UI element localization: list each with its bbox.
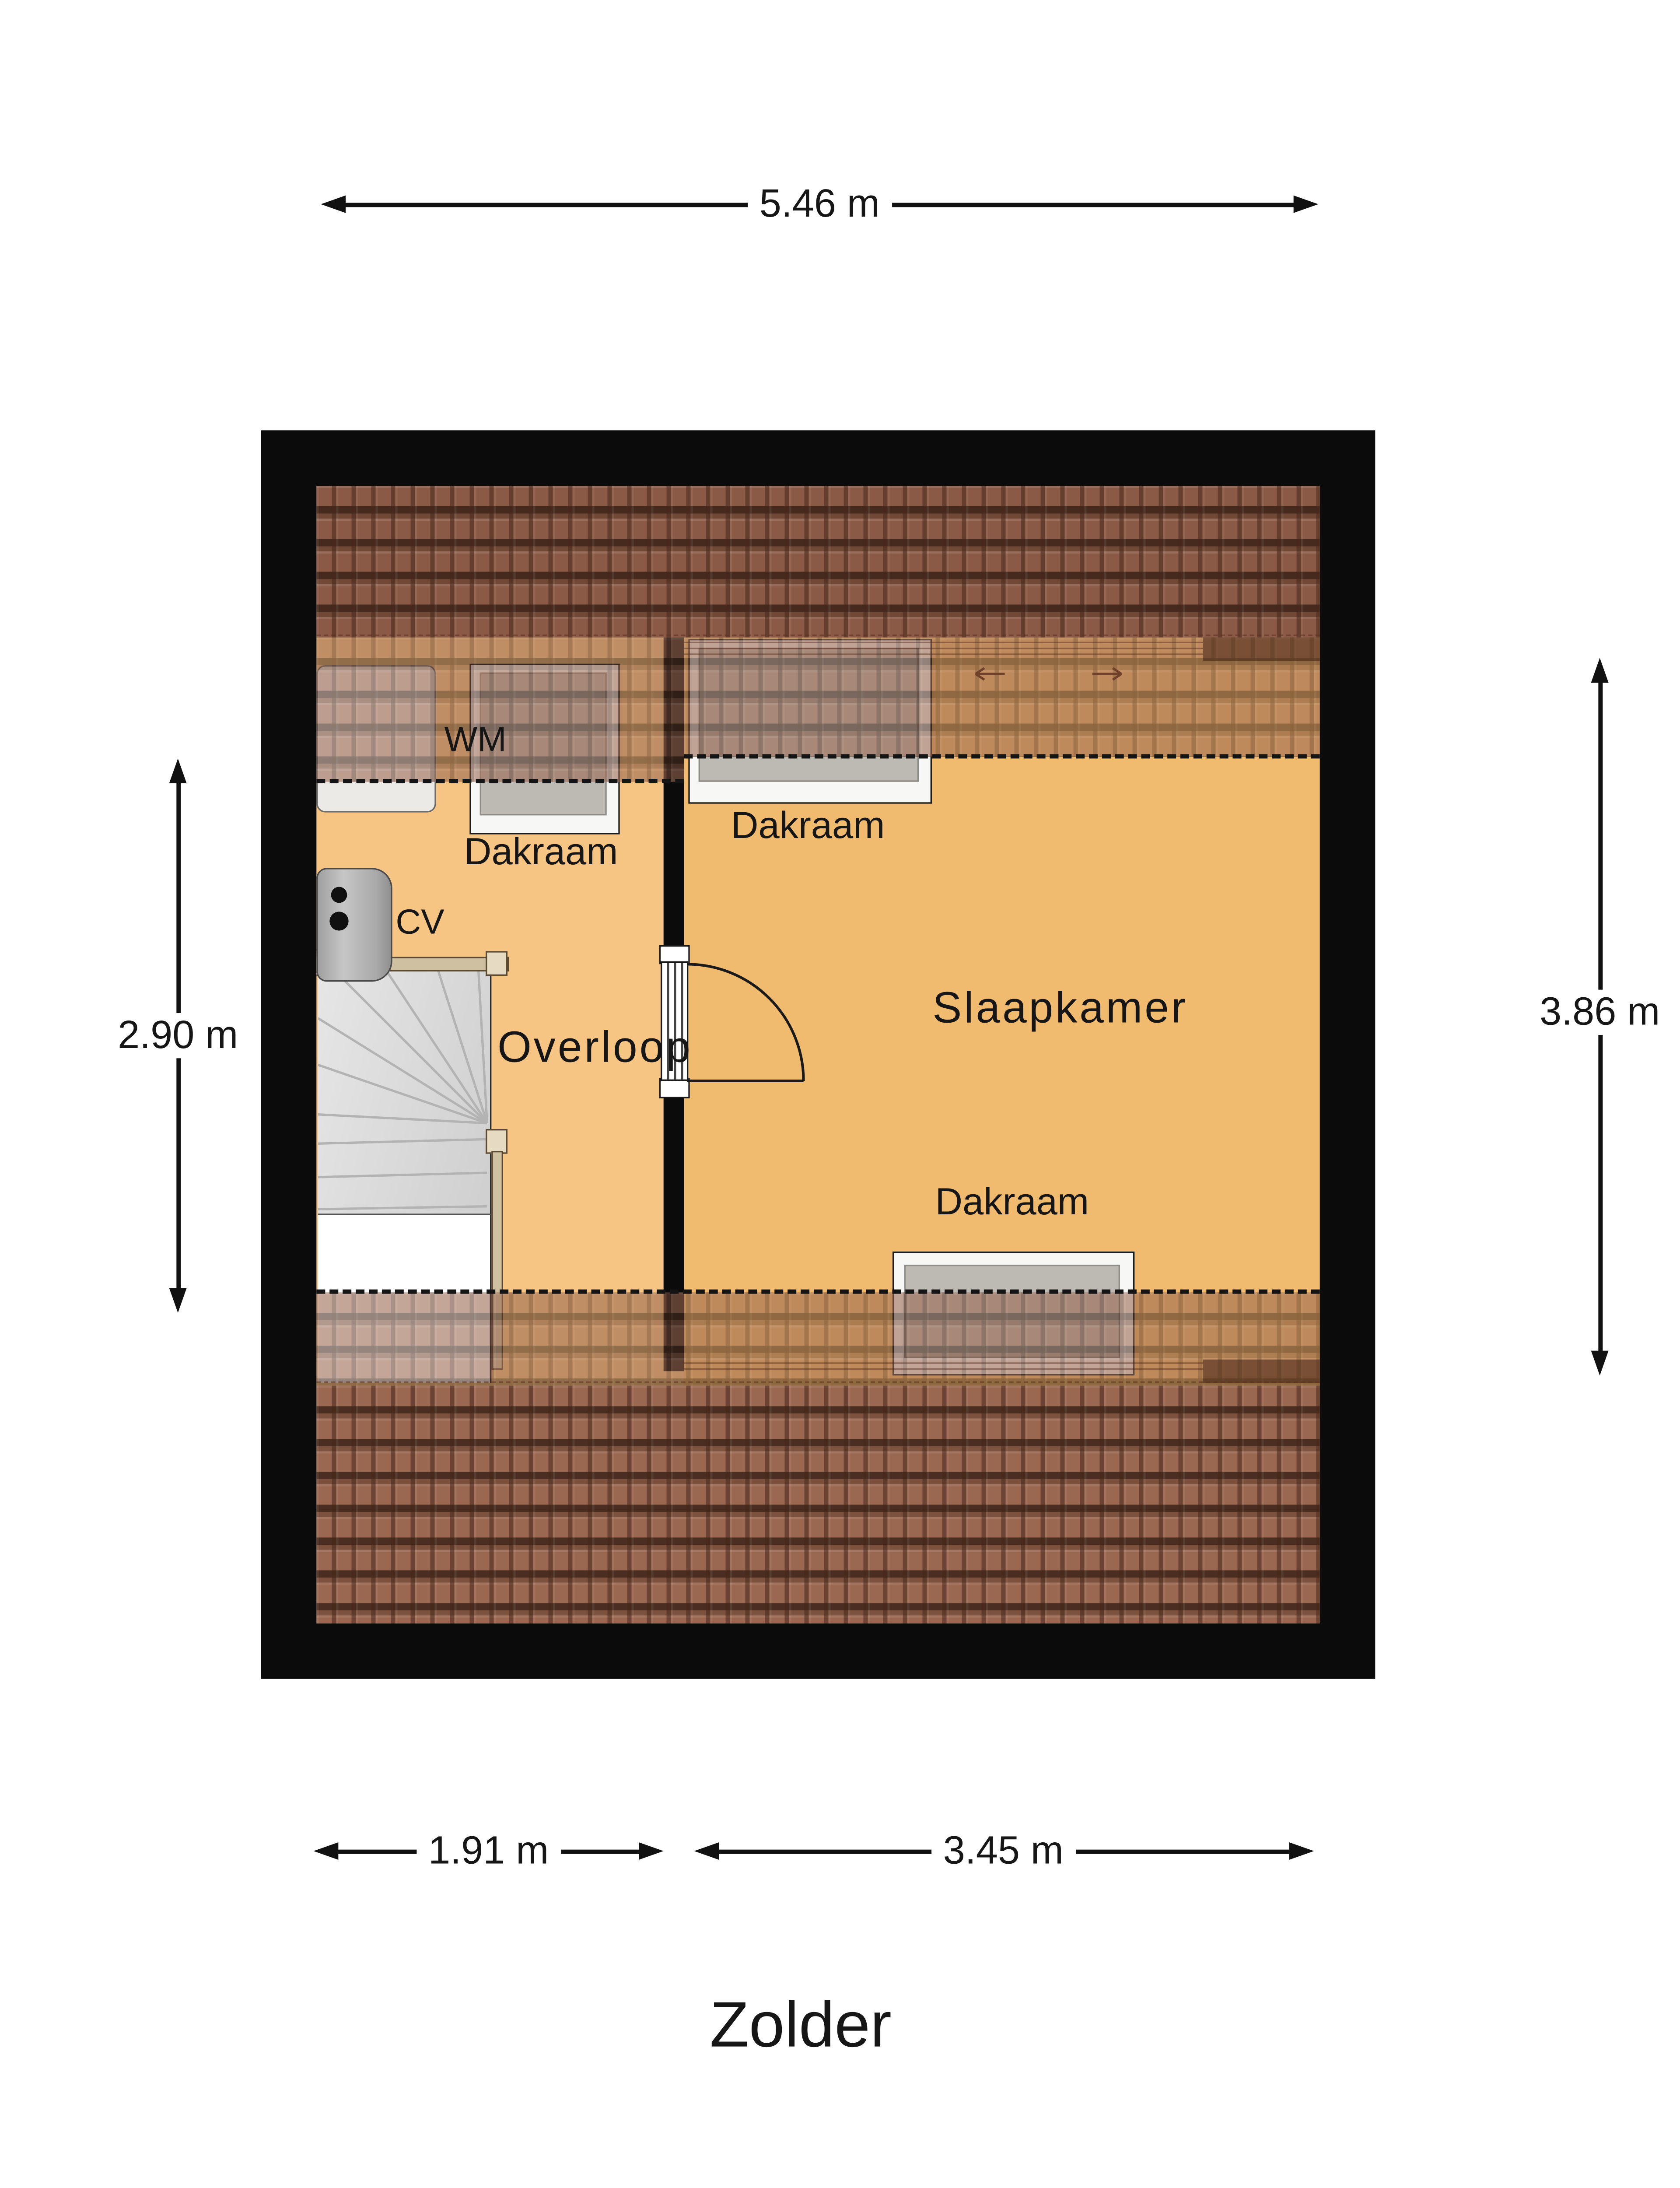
dimension-right: 3.86 m xyxy=(1563,658,1636,1375)
stair-treads xyxy=(318,968,490,1213)
dimension-label: 3.45 m xyxy=(931,1828,1075,1873)
dimension-arrow-icon xyxy=(1289,1842,1314,1860)
roof-track-line xyxy=(684,1368,1203,1370)
dimension-label: 2.90 m xyxy=(106,1013,249,1058)
dashed-roofline-bottom xyxy=(316,1290,1319,1294)
dimension-label: 1.91 m xyxy=(416,1828,560,1873)
roof-track-line xyxy=(684,653,1203,655)
floor-plan-page: 5.46 m 2.90 m 3.86 m xyxy=(0,0,1680,2188)
roof-track-line xyxy=(684,1362,1203,1364)
boiler-cv-unit xyxy=(316,868,392,982)
dashed-roofline-top-right xyxy=(684,754,1319,758)
dashed-roofline-top-left xyxy=(316,779,684,783)
dimension-bottom-right: 3.45 m xyxy=(694,1835,1314,1870)
dimension-arrow-icon xyxy=(1591,1351,1609,1376)
dimension-bottom-left: 1.91 m xyxy=(314,1835,664,1870)
stair-post xyxy=(486,1129,507,1154)
washing-machine-label: WM xyxy=(444,721,507,761)
roof-window-label-right: Dakraam xyxy=(731,803,885,848)
dimension-arrow-icon xyxy=(694,1842,719,1860)
dimension-arrow-icon xyxy=(169,758,187,783)
roof-window-label-left: Dakraam xyxy=(464,829,618,874)
dimension-arrow-icon xyxy=(321,196,346,213)
roof-slope-arrow-left-icon xyxy=(970,665,1005,683)
roof-break-line xyxy=(316,635,1319,636)
boiler-knob-icon xyxy=(331,887,347,903)
boiler-label: CV xyxy=(395,903,444,943)
dimension-label: 5.46 m xyxy=(748,182,891,227)
roof-track-line xyxy=(684,648,1203,649)
roof-slope-arrow-right-icon xyxy=(1092,665,1127,683)
roof-track-line xyxy=(684,642,1203,643)
dimension-arrow-icon xyxy=(1591,658,1609,683)
dimension-arrow-icon xyxy=(639,1842,664,1860)
roof-ridge-segment xyxy=(1203,1360,1320,1383)
stair-post xyxy=(486,951,507,976)
roof-overlay-bottom xyxy=(316,1292,1319,1385)
room-label-overloop: Overloop xyxy=(497,1024,693,1073)
roof-break-line xyxy=(316,1382,1319,1383)
boiler-knob-icon xyxy=(329,912,348,930)
dimension-arrow-icon xyxy=(169,1288,187,1313)
dimension-arrow-icon xyxy=(314,1842,339,1860)
roof-window-label-bottom: Dakraam xyxy=(935,1179,1089,1224)
attic-interior: WM CV Dakraam Dakraam Dakraam Overloop S… xyxy=(316,486,1319,1623)
dimension-left: 2.90 m xyxy=(143,758,216,1313)
dimension-label: 3.86 m xyxy=(1528,990,1671,1035)
dimension-top: 5.46 m xyxy=(321,188,1318,223)
room-label-slaapkamer: Slaapkamer xyxy=(933,985,1188,1034)
roof-tiles-bottom xyxy=(316,1386,1319,1623)
dimension-arrow-icon xyxy=(1294,196,1319,213)
roof-tiles-top xyxy=(316,486,1319,638)
roof-ridge-segment xyxy=(1203,638,1320,661)
door-swing-arc-icon xyxy=(684,961,809,1087)
page-title: Zolder xyxy=(710,1990,892,2063)
